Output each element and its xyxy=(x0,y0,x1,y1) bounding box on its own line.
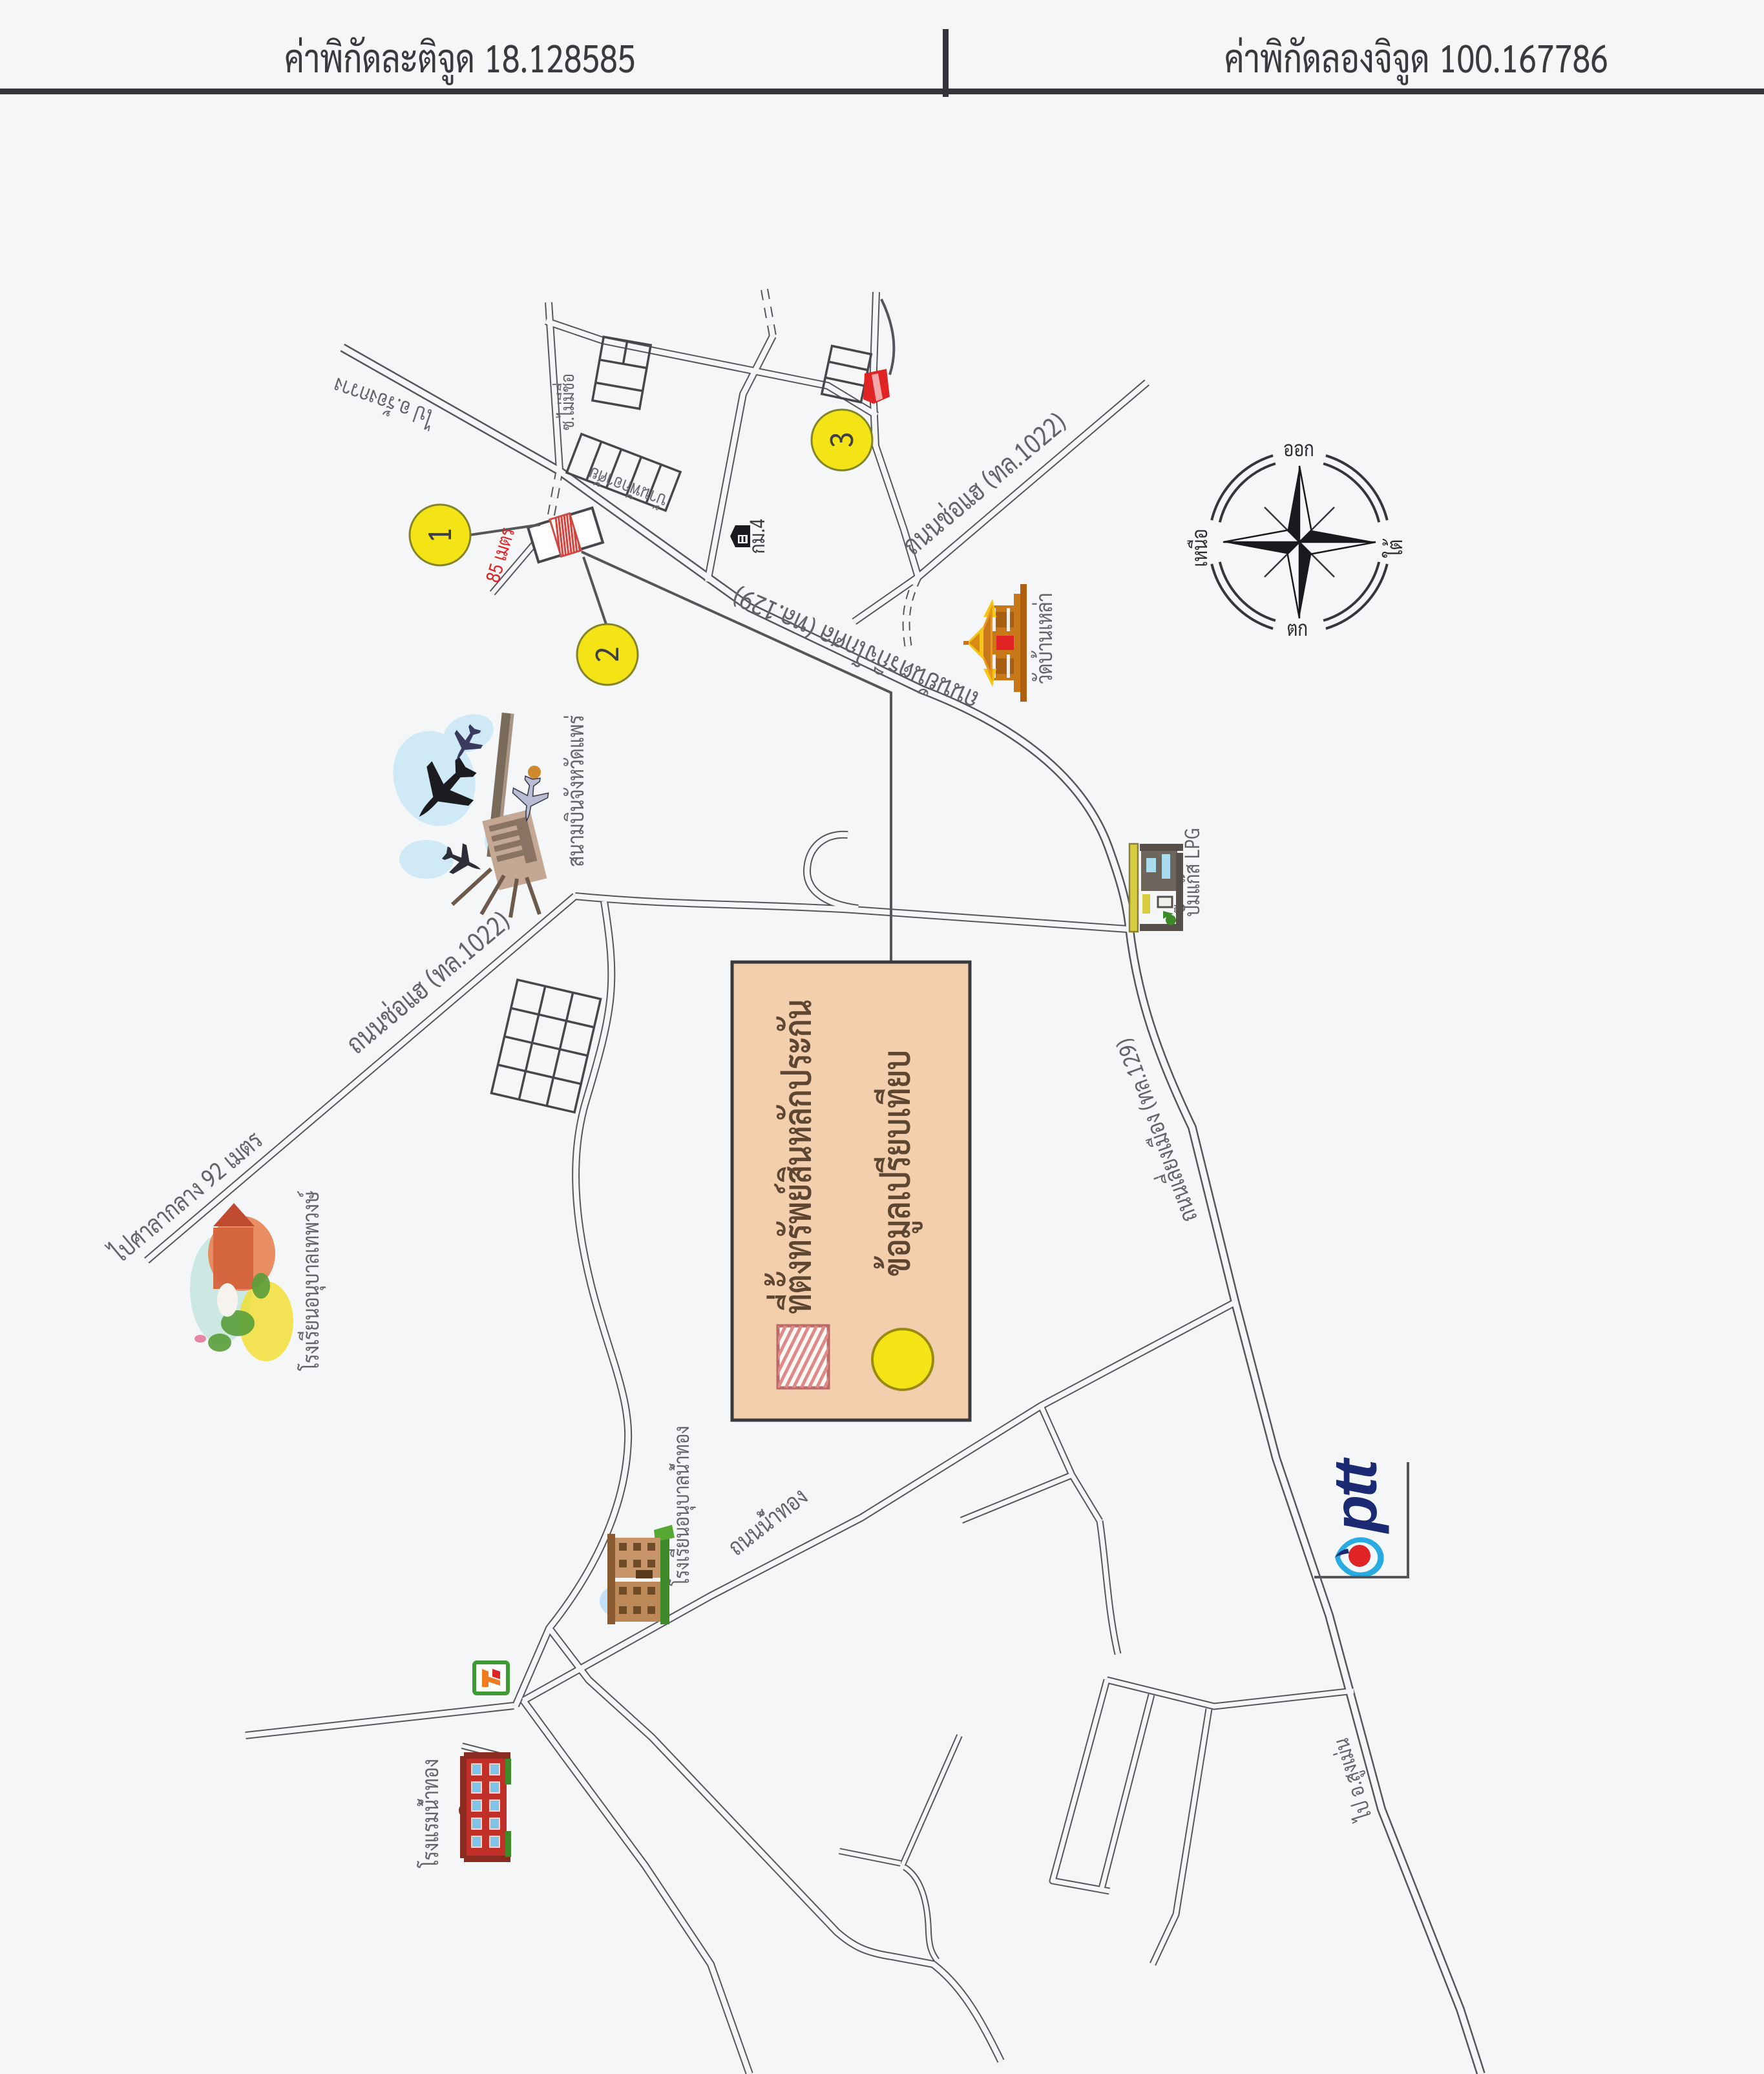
svg-text:ptt: ptt xyxy=(1321,1457,1390,1535)
